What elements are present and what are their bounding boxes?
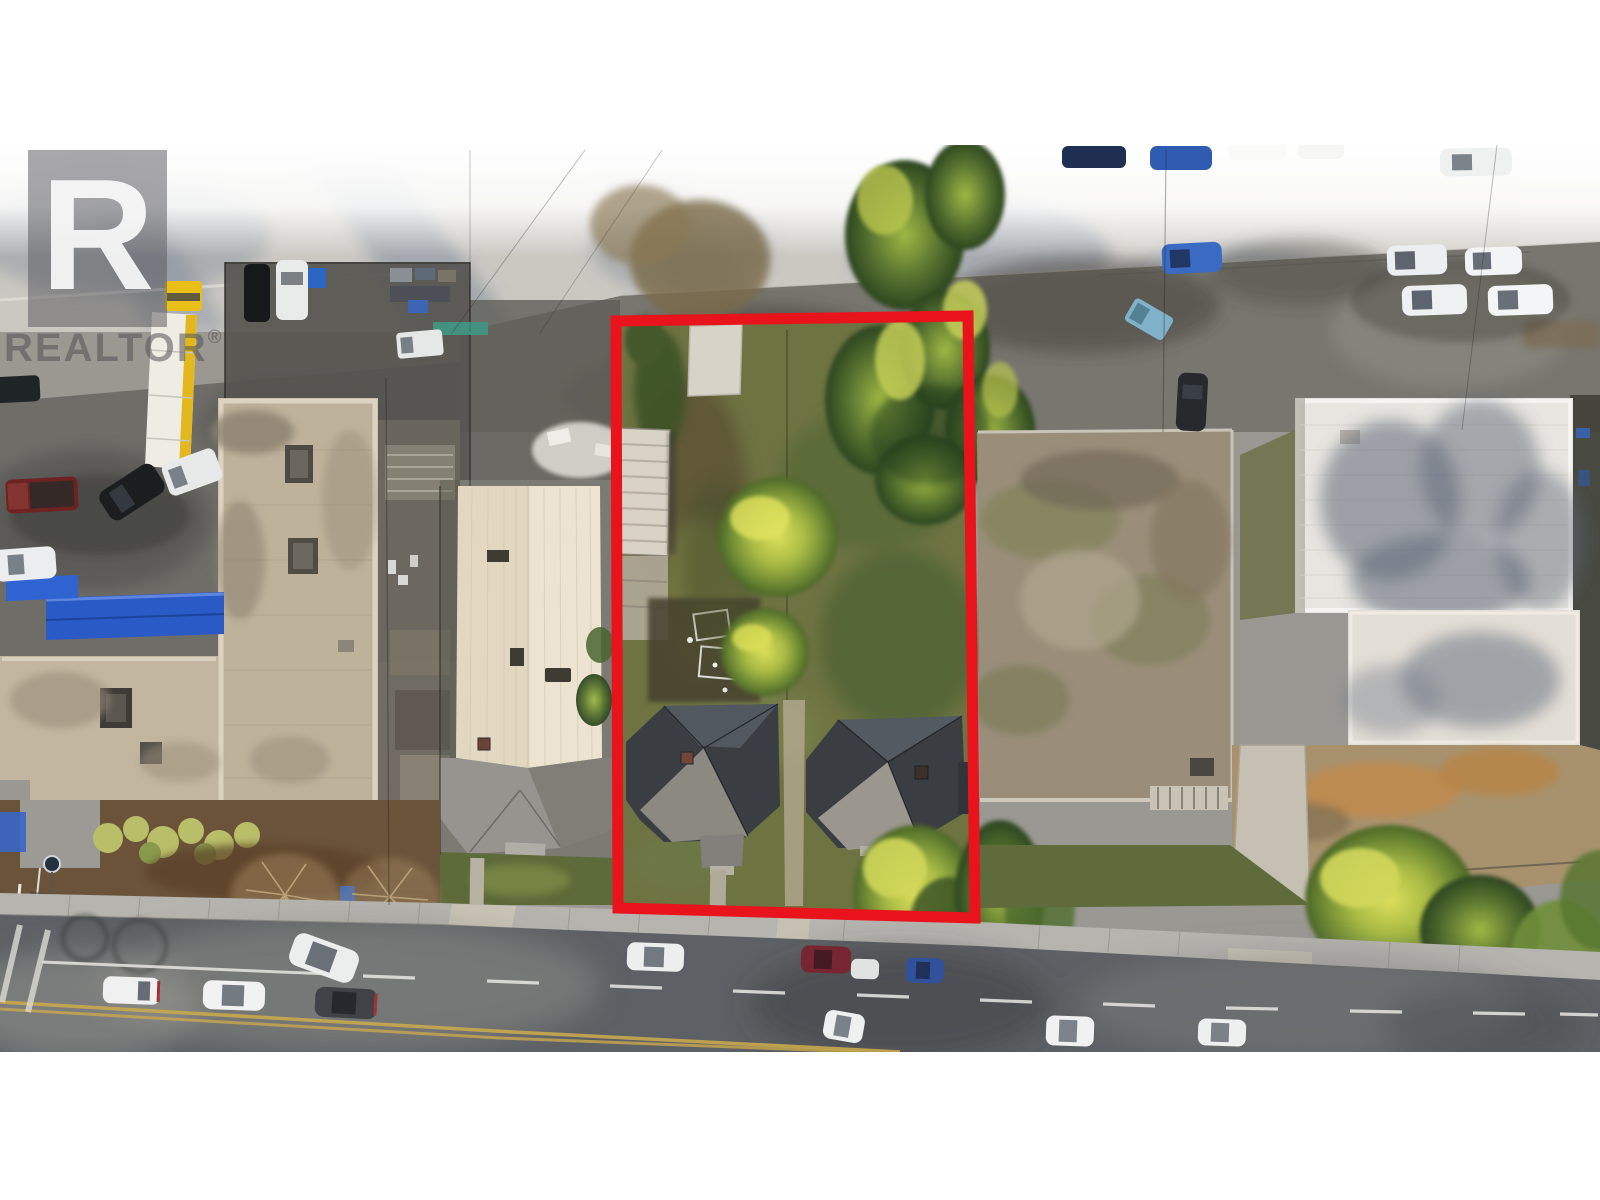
registered-trademark-symbol: ® xyxy=(208,327,222,348)
parked-van xyxy=(396,329,444,359)
round-tree-large xyxy=(718,477,838,597)
cream-roof-house xyxy=(440,480,640,905)
shared-driveway xyxy=(783,700,805,906)
aerial-photo: R REALTOR® xyxy=(0,145,1600,1052)
parked-car xyxy=(0,375,41,403)
concrete-pad xyxy=(688,324,742,396)
realtor-logo-r-icon: R xyxy=(40,156,154,314)
parked-car xyxy=(244,264,270,322)
realtor-logo-block: R xyxy=(28,150,167,327)
aerial-scene xyxy=(0,145,1600,1052)
realtor-watermark-text: REALTOR® xyxy=(4,326,222,371)
parked-car xyxy=(276,260,308,320)
page: R REALTOR® xyxy=(0,0,1600,1200)
round-tree-small xyxy=(721,608,809,696)
vacant-gravel-lot xyxy=(970,430,1232,810)
street-sign xyxy=(44,856,60,872)
